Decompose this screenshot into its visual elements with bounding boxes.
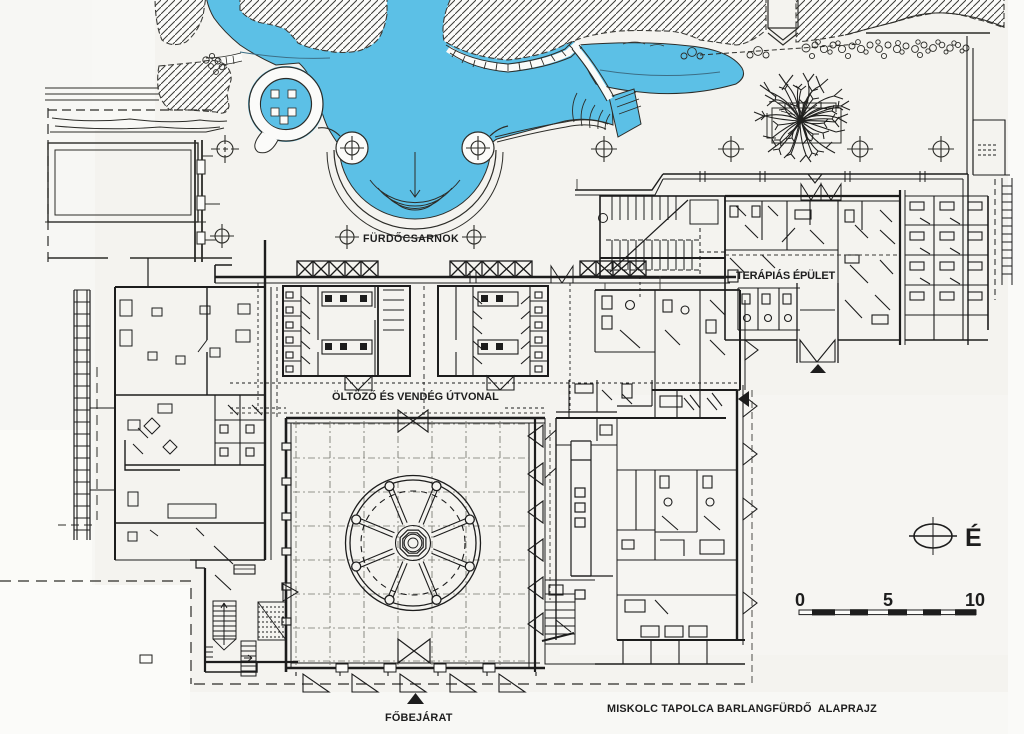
svg-text:MISKOLC TAPOLCA BARLANGFÜRDŐ: MISKOLC TAPOLCA BARLANGFÜRDŐ ALAPRAJZ [607,702,877,715]
svg-text:FÜRDŐCSARNOK: FÜRDŐCSARNOK [363,232,459,245]
svg-text:FŐBEJÁRAT: FŐBEJÁRAT [385,711,453,724]
svg-text:É: É [965,523,982,552]
svg-text:ÖLTÖZŐ ÉS VENDÉG ÚTVONAL: ÖLTÖZŐ ÉS VENDÉG ÚTVONAL [332,390,499,403]
svg-text:0: 0 [795,590,805,610]
svg-text:5: 5 [883,590,893,610]
svg-text:TERÁPIÁS ÉPÜLET: TERÁPIÁS ÉPÜLET [736,269,836,282]
svg-text:10: 10 [965,590,985,610]
